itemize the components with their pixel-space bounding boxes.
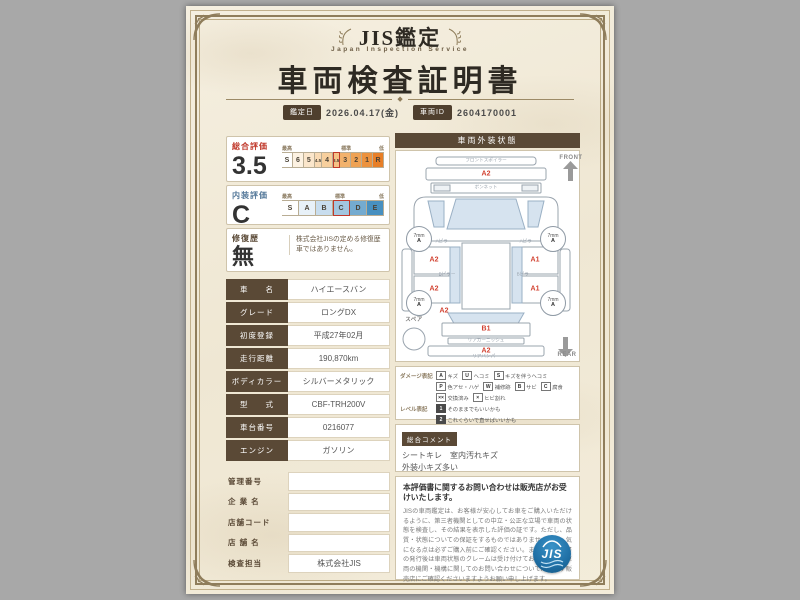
legend-item: × ヒビ割れ [473,393,506,402]
damage-legend-label: ダメージ表記 [400,371,436,402]
disclaimer-box: 本評価書に関するお問い合わせは販売店がお受けいたします。 JISの車両鑑定は、お… [395,476,580,580]
legend-item-label: ヒビ割れ [484,394,505,402]
table-row: 車台番号 0216077 [226,417,390,438]
scale-cell: C [333,200,350,216]
comment-line: 外装小キズ多い [402,462,573,473]
legend-item-label: ヘコミ [474,372,490,380]
interior-scale: 最高 標準 低 S A B C D [282,193,384,216]
legend-code-chip: ×× [436,393,446,402]
row-label: エンジン [226,440,288,461]
part-label: Bピラー [517,273,534,278]
scale-cell: 4.5 [315,152,322,168]
exterior-diagram: FRONT REAR スペア フロントスポイラー ボンネット Aピラー Aピラー… [395,150,580,362]
table-row: ボディカラー シルバーメタリック [226,371,390,392]
row-label: 車 名 [226,279,288,300]
row-label: 管理番号 [226,472,288,491]
damage-mark: A1 [531,286,540,293]
office-table: 管理番号 企 業 名 店舗コード 店 舗 名 [226,472,390,575]
part-label: リアガーニッシュ [468,339,505,344]
brand-subtitle: Japan Inspection Service [186,46,614,53]
interior-rating-box: 内装評価 C 最高 標準 低 S A B C [226,185,390,225]
tire-rear-right: 7mm A [540,290,566,316]
part-label: ボンネット [475,186,498,191]
legend-item-label: 交換済み [448,394,469,402]
scale-cell: B [316,200,333,216]
overall-rating-box: 総合評価 3.5 最高 標準 低 S 6 5 4.5 [226,136,390,182]
row-value: ハイエースバン [288,279,390,300]
table-row: 走行距離 190,870km [226,348,390,369]
damage-mark: A2 [440,308,449,315]
row-label: 企 業 名 [226,493,288,512]
legend-item-label: キズを伴うヘコミ [505,372,547,380]
scale-cell: S [282,200,299,216]
scale-cell: D [350,200,367,216]
damage-mark: A2 [482,348,491,355]
row-value: ロングDX [288,302,390,323]
exterior-section-title: 車両外装状態 [395,133,580,148]
scale-cell: 2 [351,152,362,168]
legend-item: P 色アセ・ハゲ [436,382,479,391]
legend-code-chip: A [436,371,446,380]
legend-item: W 補修跡 [483,382,510,391]
table-row: 検査担当 株式会社JIS [226,554,390,573]
legend-item: B サビ [515,382,537,391]
tire-grade: A [551,239,555,245]
row-value: 0216077 [288,417,390,438]
legend-item-label: これくらいで直せばいいかも [448,416,517,424]
scale-cell: 1 [362,152,373,168]
legend-item-label: 色アセ・ハゲ [448,383,480,391]
tire-front-left: 7mm A [406,226,432,252]
scale-cell: 3 [340,152,351,168]
overall-scale-cells: S 6 5 4.5 4 3.5 3 2 [282,152,384,168]
table-row: 初度登録 平成27年02月 [226,325,390,346]
row-label: 検査担当 [226,554,288,573]
row-label: 車台番号 [226,417,288,438]
legend-code-chip: U [462,371,472,380]
row-label: 走行距離 [226,348,288,369]
legend-item: ×× 交換済み [436,393,469,402]
tire-front-right: 7mm A [540,226,566,252]
table-row: 型 式 CBF-TRH200V [226,394,390,415]
id-value: 2604170001 [457,108,517,118]
scale-cell: R [373,152,384,168]
scale-standard-label: 標準 [335,193,345,200]
table-row: 管理番号 [226,472,390,491]
legend-code-chip: C [541,382,551,391]
table-row: 店 舗 名 [226,534,390,553]
legend-item-label: 補修跡 [495,383,511,391]
tire-grade: A [417,303,421,309]
front-label: FRONT [559,155,582,161]
row-value: CBF-TRH200V [288,394,390,415]
certificate-page: JIS鑑定 Japan Inspection Service 車両検査証明書 ◆… [186,6,614,594]
legend-code-chip: W [483,382,493,391]
disclaimer-title: 本評価書に関するお問い合わせは販売店がお受けいたします。 [403,483,572,503]
row-label: 初度登録 [226,325,288,346]
damage-mark: B1 [482,326,491,333]
row-label: 店 舗 名 [226,534,288,553]
document-title: 車両検査証明書 [186,56,614,100]
scale-cell: 4 [322,152,333,168]
comment-box: 総合コメント シートキレ 室内汚れキズ 外装小キズ多い [395,424,580,472]
legend-item: 1 そのままでもいいかも [436,404,500,413]
damage-mark: A2 [482,171,491,178]
legend-item: S キズを伴うヘコミ [494,371,548,380]
scale-cell: 3.5 [333,152,340,168]
spare-label: スペア [405,315,423,323]
jis-logo: JIS [533,535,571,573]
scale-cell: S [282,152,293,168]
row-value: 株式会社JIS [288,554,390,573]
comment-label: 総合コメント [402,432,457,446]
damage-legend-items: A キズ U ヘコミ S キズを伴うヘコミ [436,371,575,402]
laurel-left-icon [339,28,353,46]
part-label: Bピラー [439,273,456,278]
legend-box: ダメージ表記 A キズ U ヘコミ [395,366,580,420]
table-row: 店舗コード [226,513,390,532]
title-ornament: ◆ [226,96,574,103]
legend-code-chip: P [436,382,446,391]
table-row: 車 名 ハイエースバン [226,279,390,300]
tire-grade: A [551,303,555,309]
row-value [288,472,390,491]
row-value [288,534,390,553]
interior-scale-cells: S A B C D E [282,200,384,216]
legend-item: A キズ [436,371,458,380]
legend-code-chip: S [494,371,504,380]
legend-item-label: キズ [448,372,459,380]
vehicle-spec-table: 車 名 ハイエースバン グレード ロングDX 初度登録 平成27年02月 走行距… [226,279,390,463]
damage-mark: A1 [531,257,540,264]
table-row: グレード ロングDX [226,302,390,323]
legend-code-chip: B [515,382,525,391]
repair-note: 株式会社JISの定める修復歴車ではありません。 [289,235,385,255]
row-value [288,513,390,532]
legend-code-chip: 2 [436,415,446,424]
legend-item: C 腐食 [541,382,563,391]
scale-cell: 6 [293,152,304,168]
scale-cell: E [367,200,384,216]
scale-low-label: 低 [379,193,384,200]
scale-standard-label: 標準 [341,145,351,152]
row-label: ボディカラー [226,371,288,392]
screenshot-stage: JIS鑑定 Japan Inspection Service 車両検査証明書 ◆… [0,0,800,600]
legend-item-label: そのままでもいいかも [448,405,501,413]
scale-head: 最高 標準 低 [282,145,384,152]
legend-item-label: サビ [526,383,537,391]
row-value: 平成27年02月 [288,325,390,346]
tire-rear-left: 7mm A [406,290,432,316]
tire-grade: A [417,239,421,245]
repair-history-box: 修復歴 無 株式会社JISの定める修復歴車ではありません。 [226,228,390,272]
scale-best-label: 最高 [282,193,292,200]
scale-cell: 5 [304,152,315,168]
scale-best-label: 最高 [282,145,292,152]
meta-row: 鑑定日 2026.04.17(金) 車両ID 2604170001 [186,105,614,120]
damage-mark: A2 [430,257,439,264]
damage-mark: A2 [430,286,439,293]
legend-code-chip: 1 [436,404,446,413]
row-label: 店舗コード [226,513,288,532]
row-value: 190,870km [288,348,390,369]
scale-cell: A [299,200,316,216]
part-label: リアバンパー [472,355,500,360]
rear-label: REAR [557,352,576,358]
legend-item-label: 腐食 [552,383,563,391]
legend-item: 2 これくらいで直せばいいかも [436,415,516,424]
row-label: 型 式 [226,394,288,415]
date-badge: 鑑定日 [283,105,321,120]
part-label: Aピラー [520,240,537,245]
comment-line: シートキレ 室内汚れキズ [402,450,573,461]
damage-legend-row: ダメージ表記 A キズ U ヘコミ [400,371,575,402]
id-badge: 車両ID [413,105,452,120]
row-label: グレード [226,302,288,323]
row-value: ガソリン [288,440,390,461]
vehicle-id: 車両ID 2604170001 [413,105,517,120]
scale-head: 最高 標準 低 [282,193,384,200]
table-row: エンジン ガソリン [226,440,390,461]
jis-logo-car-icon [533,535,571,573]
table-row: 企 業 名 [226,493,390,512]
date-value: 2026.04.17(金) [326,106,399,119]
inspection-date: 鑑定日 2026.04.17(金) [283,105,399,120]
overall-scale: 最高 標準 低 S 6 5 4.5 4 [282,145,384,168]
legend-item: U ヘコミ [462,371,489,380]
part-label: Aピラー [436,240,453,245]
laurel-right-icon [447,28,461,46]
scale-low-label: 低 [379,145,384,152]
corner-flourish-icon [578,558,608,588]
corner-flourish-icon [192,558,222,588]
part-label: フロントスポイラー [465,159,506,164]
row-value: シルバーメタリック [288,371,390,392]
legend-code-chip: × [473,393,483,402]
row-value [288,493,390,512]
